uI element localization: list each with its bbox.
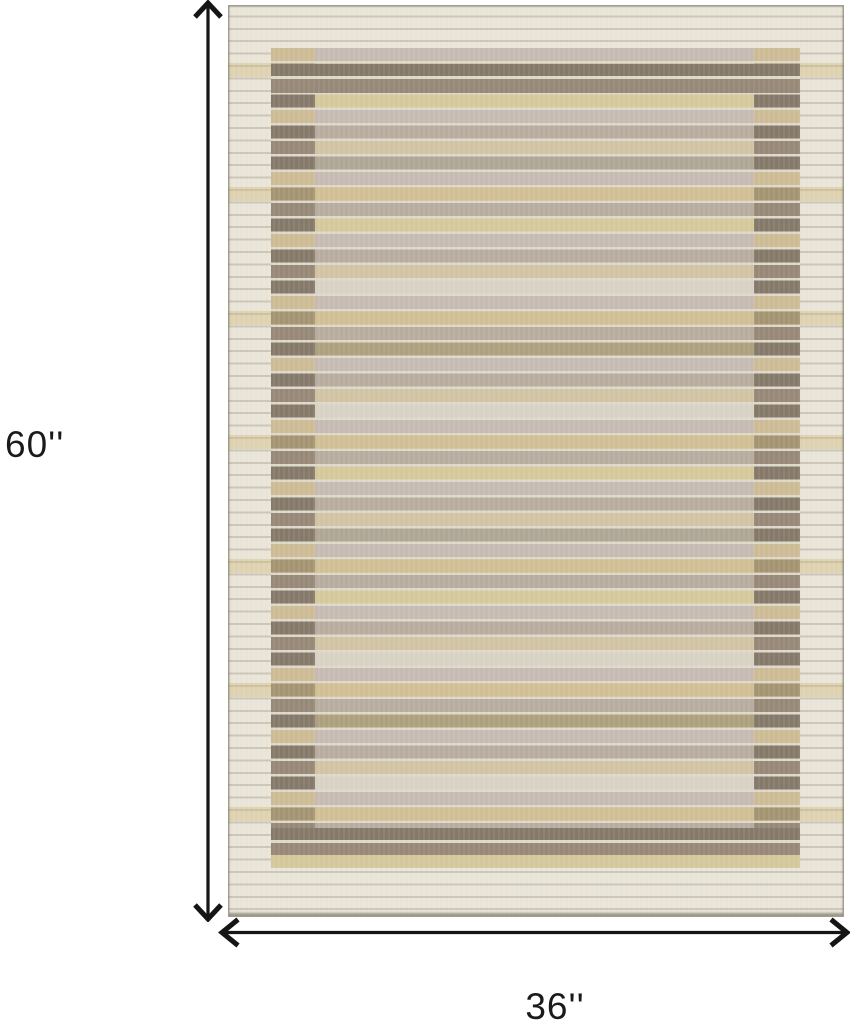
width-dimension-arrow [216,915,850,951]
rug-edge-shadow [228,5,844,917]
rug-dimension-diagram: 60'' 36'' [0,0,850,1020]
height-dimension-label: 60'' [5,426,64,463]
width-dimension-label: 36'' [515,988,595,1025]
rug-image [228,5,844,917]
height-dimension-arrow [190,0,226,922]
